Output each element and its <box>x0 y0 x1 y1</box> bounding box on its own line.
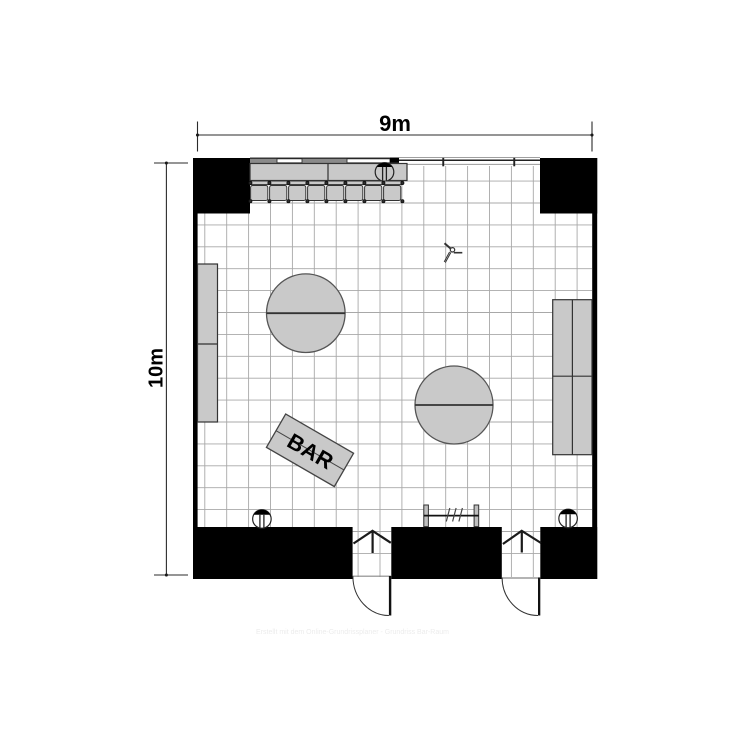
svg-text:Erstellt mit dem Online-Grundr: Erstellt mit dem Online-Grundrissplaner … <box>256 629 449 636</box>
svg-text:10m: 10m <box>146 348 168 388</box>
svg-text:9m: 9m <box>379 111 411 136</box>
